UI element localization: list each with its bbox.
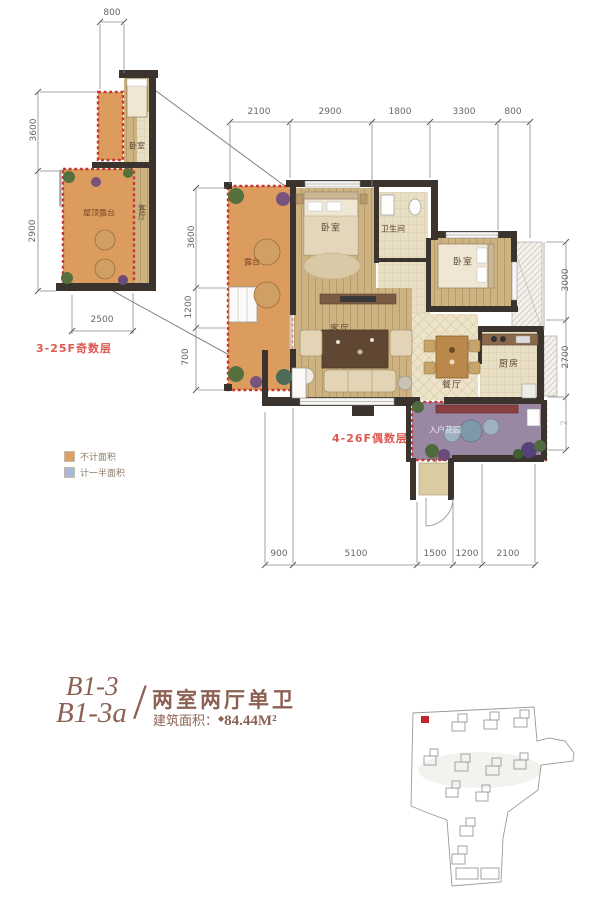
dim-left-3: 700 [181,348,191,365]
entry-door-arc [426,498,453,526]
site-buildings [424,710,529,879]
legend-half-counted: 计一半面积 [64,466,125,479]
area-value: 84.44M² [224,713,276,729]
dim-bottom-5: 2100 [497,549,520,559]
dim-bottom-2: 5100 [345,549,368,559]
legend-orange-swatch-icon [64,451,75,462]
area-label: 建筑面积： [153,713,218,728]
dining-label: 餐厅 [442,378,462,391]
dim-top-5: 800 [504,107,521,117]
kitchen-label: 厨房 [499,357,519,370]
dim-top-2: 2900 [319,107,342,117]
dim-bottom-3: 1500 [424,549,447,559]
small-living-label: 客厅 [137,204,148,220]
dim-left-2: 1200 [184,296,194,319]
area-line: 建筑面积：◆84.44M² [153,710,277,730]
dim-small-top: 800 [103,8,120,18]
dim-small-bottom: 2500 [91,315,114,325]
even-floors-label: 4-26F偶数层 [332,430,408,446]
unit-code-2: B1-3a [56,697,127,730]
legend-not-counted: 不计面积 [64,450,116,463]
dim-right-3: 2 [560,420,570,426]
title-divider: / [133,672,147,730]
dim-bottom-4: 1200 [456,549,479,559]
small-bedroom-label: 卧室 [129,141,145,152]
dim-right-2: 2700 [561,346,571,369]
bedroom1-label: 卧室 [321,221,341,234]
legend-half-counted-label: 计一半面积 [80,466,125,479]
bedroom1-furniture [296,192,367,279]
site-location-marker-icon [421,716,429,723]
small-plan [56,70,158,291]
dim-top-3: 1800 [389,107,412,117]
dim-left-1: 3600 [187,226,197,249]
small-terrace-label: 屋顶露台 [83,208,115,219]
dim-top-4: 3300 [453,107,476,117]
living-label: 客厅 [330,322,350,335]
main-terrace-label: 露台 [244,257,260,268]
entry-label: 入户 [427,454,443,465]
bedroom2-label: 卧室 [453,255,473,268]
entry-garden-label: 入户花园 [429,425,461,436]
floorplan-page: 800 3600 2900 2500 卧室 客厅 屋顶露台 3-25F奇数层 2… [0,0,600,900]
dim-right-1: 3000 [561,269,571,292]
dim-small-left-upper: 3600 [29,119,39,142]
dim-small-left-lower: 2900 [28,220,38,243]
bathroom-label: 卫生间 [381,224,405,235]
dim-bottom-1: 900 [270,549,287,559]
legend-blue-swatch-icon [64,467,75,478]
legend-not-counted-label: 不计面积 [80,450,116,463]
dim-top-1: 2100 [248,107,271,117]
odd-floors-label: 3-25F奇数层 [36,340,112,356]
site-plan [411,707,574,886]
